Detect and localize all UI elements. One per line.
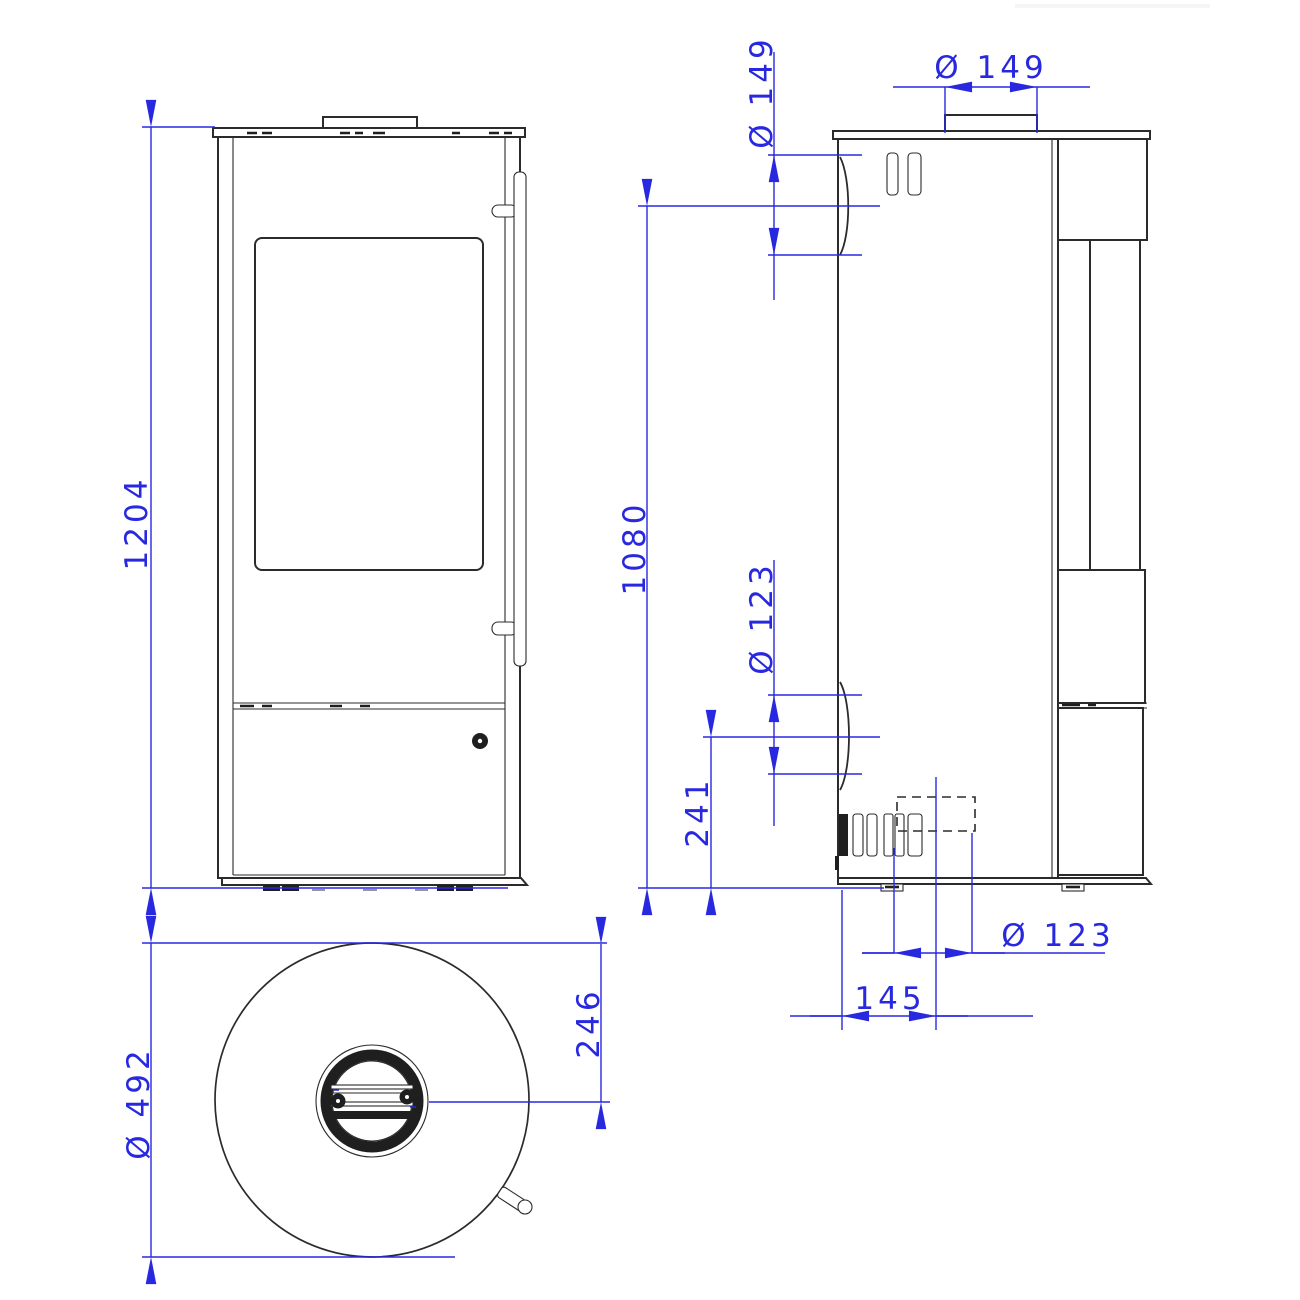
dim-label-246: 246 — [571, 987, 607, 1058]
front-lock-knob-center — [478, 739, 482, 743]
side-base-plate — [838, 878, 1151, 884]
handle-standoff-top — [492, 205, 517, 217]
handle-bar — [514, 172, 526, 666]
dim-label-145: 145 — [854, 981, 925, 1017]
side-feet — [881, 884, 1084, 891]
dim-label-side-flue-rear: Ø 149 — [744, 35, 780, 148]
scan-artifact — [1015, 4, 1210, 8]
handle-standoff-bottom — [492, 622, 517, 635]
dim-label-side-rear-outlet: Ø 123 — [744, 561, 780, 674]
damper-bar-1 — [331, 1085, 413, 1089]
side-flue-collar — [945, 115, 1037, 131]
side-view — [833, 115, 1151, 891]
side-top-plate — [833, 131, 1150, 139]
drawing-canvas: 1204 Ø 149 Ø 149 1080 Ø 123 — [0, 0, 1300, 1300]
side-door-lower-section — [1058, 570, 1145, 703]
dim-label-bottom-outlet: Ø 123 — [1001, 918, 1114, 954]
front-body — [218, 137, 520, 878]
dim-label-side-height: 1080 — [617, 501, 653, 596]
side-body — [838, 139, 1058, 878]
front-top-plate — [213, 128, 525, 137]
dim-label-top-diameter: Ø 492 — [121, 1046, 157, 1159]
dim-label-side-flue-top: Ø 149 — [934, 50, 1047, 86]
top-flue-collar — [316, 1045, 428, 1157]
front-base-plate — [222, 878, 527, 885]
side-lower-panel — [1058, 708, 1143, 875]
damper-bar-thick — [326, 1111, 418, 1119]
technical-drawing-page: 1204 Ø 149 Ø 149 1080 Ø 123 — [0, 0, 1300, 1300]
side-door-window-profile — [1090, 240, 1140, 570]
side-door-top-section — [1058, 139, 1147, 240]
top-door-handle-stub — [496, 1186, 532, 1214]
dim-label-front-height: 1204 — [119, 476, 155, 571]
top-view — [215, 943, 532, 1257]
dim-label-side-241: 241 — [680, 776, 716, 847]
front-view — [213, 117, 527, 891]
